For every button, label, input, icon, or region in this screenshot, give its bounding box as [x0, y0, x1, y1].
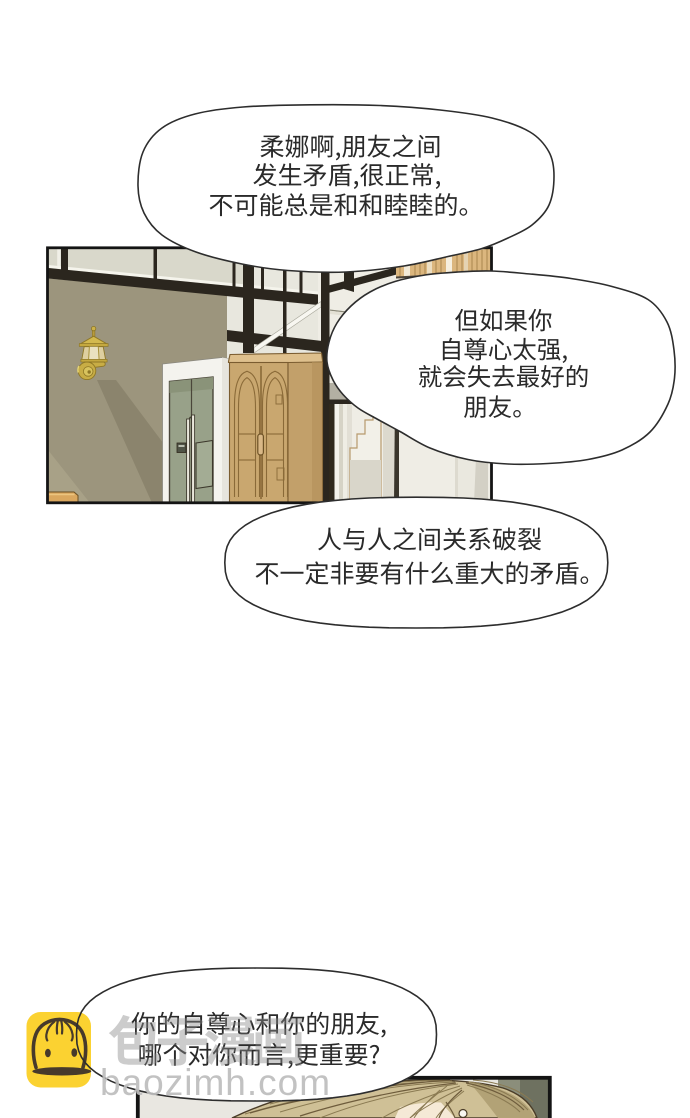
svg-text:baozimh.com: baozimh.com: [100, 1062, 331, 1103]
